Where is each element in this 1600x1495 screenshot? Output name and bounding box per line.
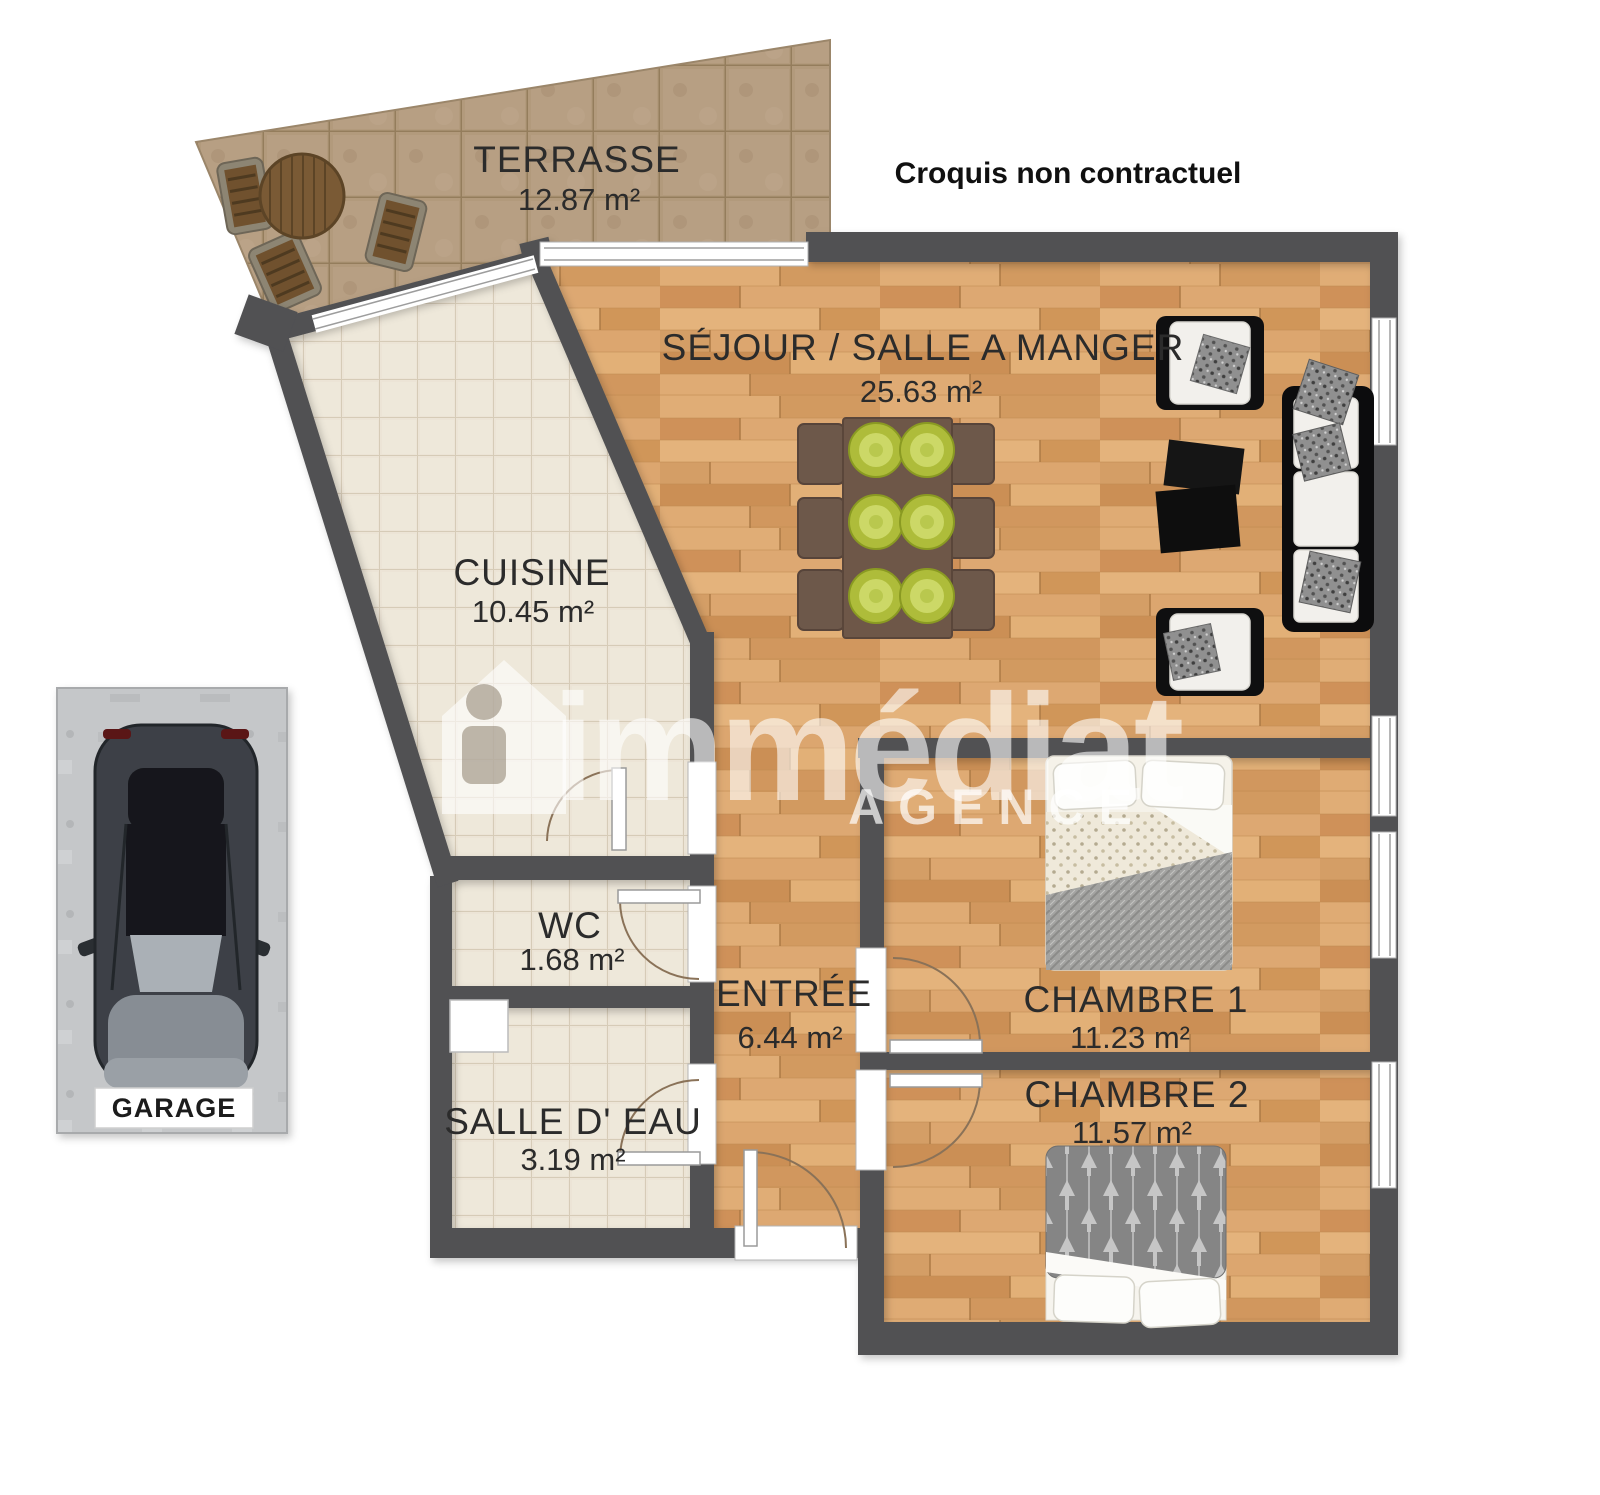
terrasse-name: TERRASSE [473, 139, 680, 180]
plates-icon [849, 423, 954, 623]
sejour-name: SÉJOUR / SALLE A MANGER [662, 327, 1185, 368]
entree-name: ENTRÉE [716, 973, 872, 1014]
garage-block: GARAGE [57, 688, 287, 1133]
car-icon [76, 725, 271, 1088]
bed-chambre2-icon [1046, 1146, 1226, 1328]
chambre2-area: 11.57 m² [1072, 1115, 1192, 1150]
salle-eau-name: SALLE D' EAU [444, 1101, 702, 1142]
sofa-icon [1282, 359, 1374, 632]
person-icon [466, 684, 502, 720]
wall-notch [450, 1000, 508, 1052]
coffee-tables-icon [1155, 440, 1244, 554]
salle-eau-area: 3.19 m² [520, 1142, 625, 1177]
garage-label: GARAGE [112, 1093, 237, 1123]
terrasse-area: 12.87 m² [518, 182, 640, 217]
wc-area: 1.68 m² [519, 942, 624, 977]
floorplan-svg: GARAGE [0, 0, 1600, 1495]
chambre1-name: CHAMBRE 1 [1024, 979, 1249, 1020]
chambre2-name: CHAMBRE 2 [1025, 1074, 1250, 1115]
chambre1-area: 11.23 m² [1070, 1020, 1190, 1055]
entree-area: 6.44 m² [737, 1020, 842, 1055]
cuisine-name: CUISINE [453, 552, 610, 593]
dining-set-icon [798, 418, 994, 638]
agency-watermark: immédiat AGENCE [442, 660, 1183, 835]
floorplan-page: GARAGE [0, 0, 1600, 1495]
sejour-area: 25.63 m² [860, 374, 982, 409]
disclaimer-text: Croquis non contractuel [895, 157, 1242, 190]
cuisine-area: 10.45 m² [472, 594, 594, 629]
watermark-subtitle: AGENCE [848, 779, 1146, 835]
wc-name: WC [538, 905, 602, 946]
